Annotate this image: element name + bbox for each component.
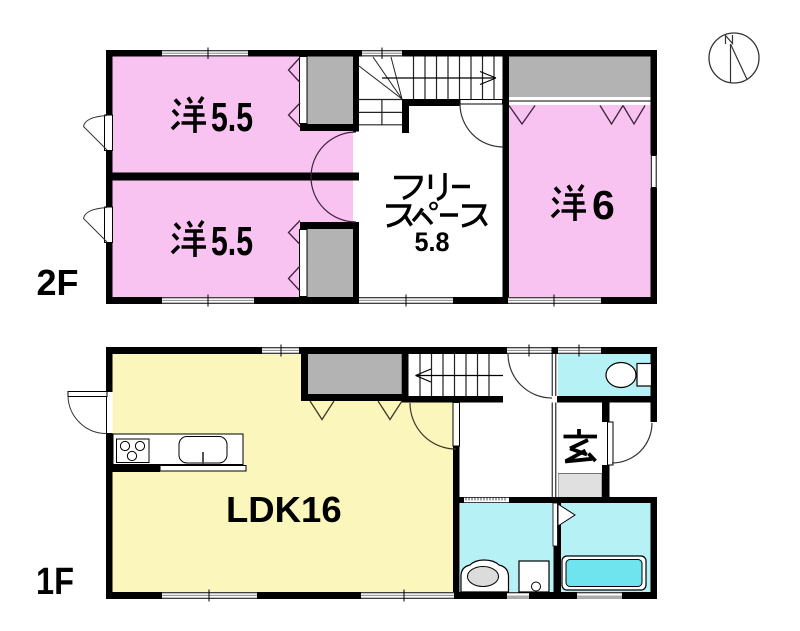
svg-text:LDK16: LDK16: [226, 489, 342, 530]
svg-text:5.8: 5.8: [415, 227, 450, 257]
svg-text:5.5: 5.5: [211, 94, 253, 140]
svg-text:2F: 2F: [37, 262, 79, 303]
svg-text:1F: 1F: [36, 561, 74, 603]
svg-text:6: 6: [592, 182, 615, 228]
svg-text:5.5: 5.5: [211, 218, 253, 264]
